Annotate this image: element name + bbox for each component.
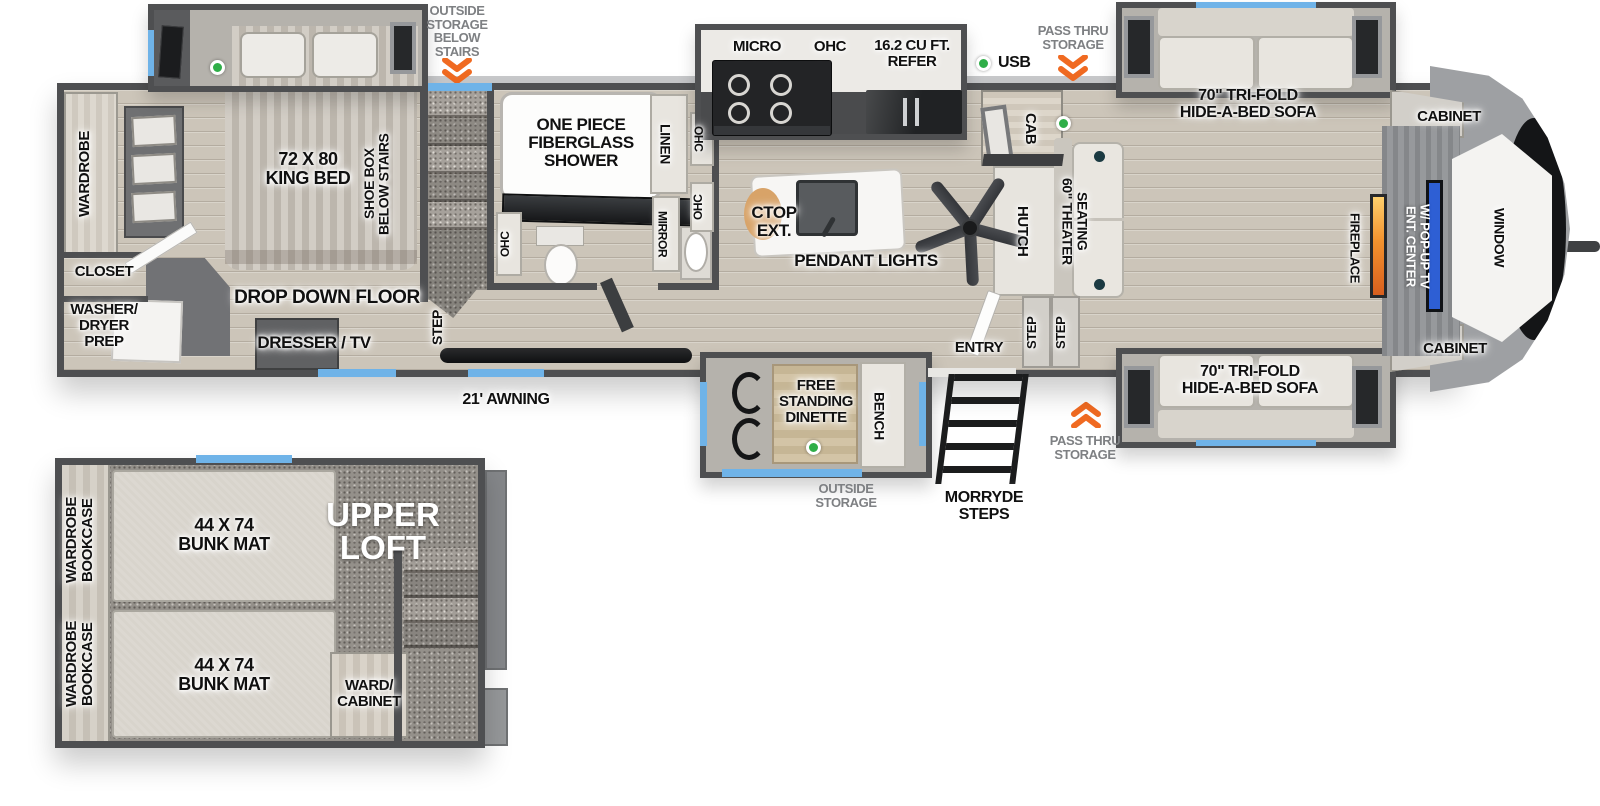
wardrobe-bookcase-bottom-label: WARDROBE BOOKCASE [64, 602, 108, 726]
bedroom-tv [158, 25, 184, 78]
up-arrows-icon [1070, 400, 1102, 428]
sofa-top-window-left [1124, 16, 1154, 78]
toilet-bowl [544, 244, 578, 286]
bath-wall-left [487, 90, 494, 290]
oven-front [714, 126, 830, 135]
cab-label: CAB [1022, 98, 1048, 160]
bath-wall-bottom-right [658, 283, 719, 290]
stove [712, 60, 832, 136]
sofa-top-window-right [1352, 16, 1382, 78]
dresser-tv-label: DRESSER / TV [248, 334, 380, 352]
bedroom-stair-wall [420, 90, 428, 302]
sofa-top-cushion-left [1158, 36, 1255, 90]
bath-sink [684, 232, 708, 272]
ohc-mid-label: OHC [692, 186, 712, 228]
ohc-top-label: OHC [692, 118, 712, 160]
entry-step-right-label: STEP [1054, 306, 1076, 360]
sofa-bottom-label: 70" TRI-FOLD HIDE-A-BED SOFA [1142, 364, 1358, 398]
mirror-label: MIRROR [656, 202, 676, 266]
fireplace-label: FIREPLACE [1348, 200, 1368, 296]
cabinet-top-label: CABINET [1404, 109, 1494, 125]
outside-storage-label: OUTSIDE STORAGE [800, 482, 892, 509]
stair-tread [428, 146, 488, 174]
sofa-top-window-accent [1196, 2, 1316, 8]
loft-outer-wall [485, 470, 507, 670]
hutch-label: HUTCH [1014, 178, 1040, 284]
shower-label: ONE PIECE FIBERGLASS SHOWER [508, 116, 654, 170]
bunk-top-label: 44 X 74 BUNK MAT [150, 516, 298, 554]
morryde-steps [935, 374, 1029, 484]
bath-wall-bottom-left [487, 283, 597, 290]
bed-foot-band [225, 250, 417, 264]
fireplace [1370, 194, 1387, 298]
dresser-drawer-2 [131, 153, 177, 185]
morryde-steps-label: MORRYDE STEPS [932, 490, 1036, 524]
pass-thru-bottom-label: PASS THRU STORAGE [1040, 434, 1130, 461]
cab-indicator-dot [1056, 116, 1071, 131]
loft-stair-tread [404, 598, 478, 623]
sofa-top-back [1158, 8, 1354, 36]
loft-stair-wall [394, 548, 402, 741]
ctop-ext-label: CTOP EXT. [742, 204, 806, 240]
sofa-top-cushion-right [1257, 36, 1354, 90]
closet-label: CLOSET [62, 264, 146, 280]
dinette-chair-top [732, 372, 766, 414]
entry-step-left-label: STEP [1025, 306, 1047, 360]
bench-label: BENCH [872, 376, 896, 456]
step-label-left: STEP [430, 300, 456, 356]
bedroom-indicator-dot [210, 60, 225, 75]
toilet-tank [536, 226, 584, 246]
fridge-handle-right [915, 98, 919, 126]
dinette-window-left [700, 382, 707, 446]
micro-label: MICRO [715, 39, 799, 55]
front-window-label: WINDOW [1492, 196, 1512, 280]
rv-floorplan: 21' AWNING FIREPLACE ENT. CENTER W/ POP-… [0, 0, 1600, 806]
wardrobe-label: WARDROBE [77, 116, 101, 232]
window-accent-bottom-1 [318, 369, 396, 377]
fan-hub [961, 219, 979, 237]
linen-label: LINEN [658, 112, 680, 176]
pillow-left [240, 32, 306, 78]
entry-label: ENTRY [933, 340, 1025, 356]
bedroom-slide-window-accent [148, 30, 154, 76]
pendant-lights-label: PENDANT LIGHTS [772, 252, 960, 270]
washer-dryer-label: WASHER/ DRYER PREP [58, 302, 150, 349]
kitchen-ohc-label: OHC [800, 39, 860, 55]
usb-indicator-dot [976, 56, 991, 71]
dinette-chair-bottom [732, 418, 766, 460]
ent-center-label: ENT. CENTER W/ POP-UP TV [1404, 180, 1440, 312]
dresser-drawer-1 [131, 115, 177, 147]
shoe-box-label: SHOE BOX BELOW STAIRS [362, 118, 410, 250]
stair-tread [428, 90, 488, 118]
upper-loft-title: UPPER LOFT [316, 498, 450, 564]
bunk-bottom-label: 44 X 74 BUNK MAT [150, 656, 298, 694]
ward-cabinet-label: WARD/ CABINET [326, 678, 412, 710]
outside-storage-below-stairs-label: OUTSIDE STORAGE BELOW STAIRS [413, 4, 501, 59]
usb-label: USB [998, 55, 1044, 72]
burner [770, 102, 792, 124]
burner [728, 74, 750, 96]
drop-down-floor-label: DROP DOWN FLOOR [228, 288, 426, 308]
awning-label: 21' AWNING [448, 392, 564, 409]
fridge-handle-left [903, 98, 907, 126]
sofa-top-label: 70" TRI-FOLD HIDE-A-BED SOFA [1140, 88, 1356, 122]
sofa-bottom-back [1158, 410, 1354, 438]
down-arrows-icon [1057, 55, 1089, 83]
window-accent-top-stairs [428, 83, 492, 91]
ohc-toilet-label: OHC [499, 222, 519, 266]
down-arrows-icon [441, 58, 473, 86]
pass-thru-top-label: PASS THRU STORAGE [1028, 24, 1118, 51]
dinette-label: FREE STANDING DINETTE [764, 378, 868, 425]
dinette-window-bottom [722, 469, 862, 477]
stair-tread [428, 118, 488, 146]
dinette-indicator-dot [806, 440, 821, 455]
cabinet-bottom-label: CABINET [1410, 341, 1500, 357]
loft-stair-tread [404, 573, 478, 598]
stair-tread [428, 174, 488, 202]
awning-bar [440, 348, 692, 363]
theater-seating-label: 60" THEATER SEATING [1060, 150, 1102, 292]
burner [728, 102, 750, 124]
refer-label: 16.2 CU FT. REFER [864, 38, 960, 70]
stair-tread [428, 202, 488, 230]
wardrobe-bookcase-top-label: WARDROBE BOOKCASE [64, 478, 108, 602]
dinette-window-right [919, 382, 926, 446]
refrigerator [866, 90, 962, 134]
pillow-right [312, 32, 378, 78]
loft-stair-tread [404, 623, 478, 648]
loft-window-accent [196, 455, 292, 463]
burner [770, 74, 792, 96]
king-bed-label: 72 X 80 KING BED [238, 150, 378, 188]
sofa-bottom-window-accent [1196, 440, 1316, 446]
dresser-drawer-3 [131, 191, 177, 223]
window-accent-bottom-2 [468, 369, 544, 377]
